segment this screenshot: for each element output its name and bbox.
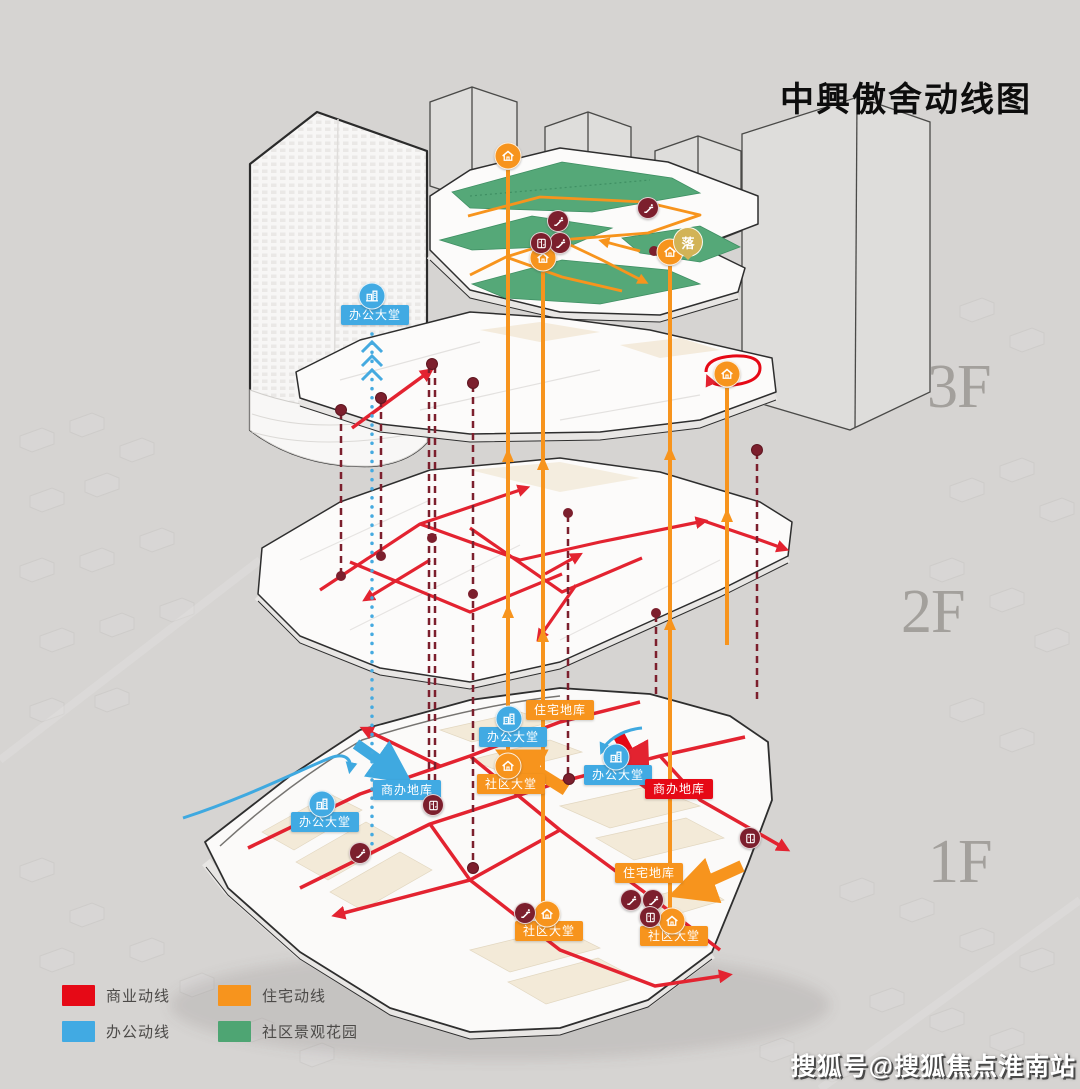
floor-2f-plate — [258, 458, 792, 689]
scene-svg — [0, 0, 1080, 1089]
circulation-diagram-page: 中興傲舍动线图 3F 2F 1F 办公大堂 办公大堂 商办地库 办公大堂 住宅地… — [0, 0, 1080, 1089]
floor-1f-plate — [170, 688, 830, 1060]
